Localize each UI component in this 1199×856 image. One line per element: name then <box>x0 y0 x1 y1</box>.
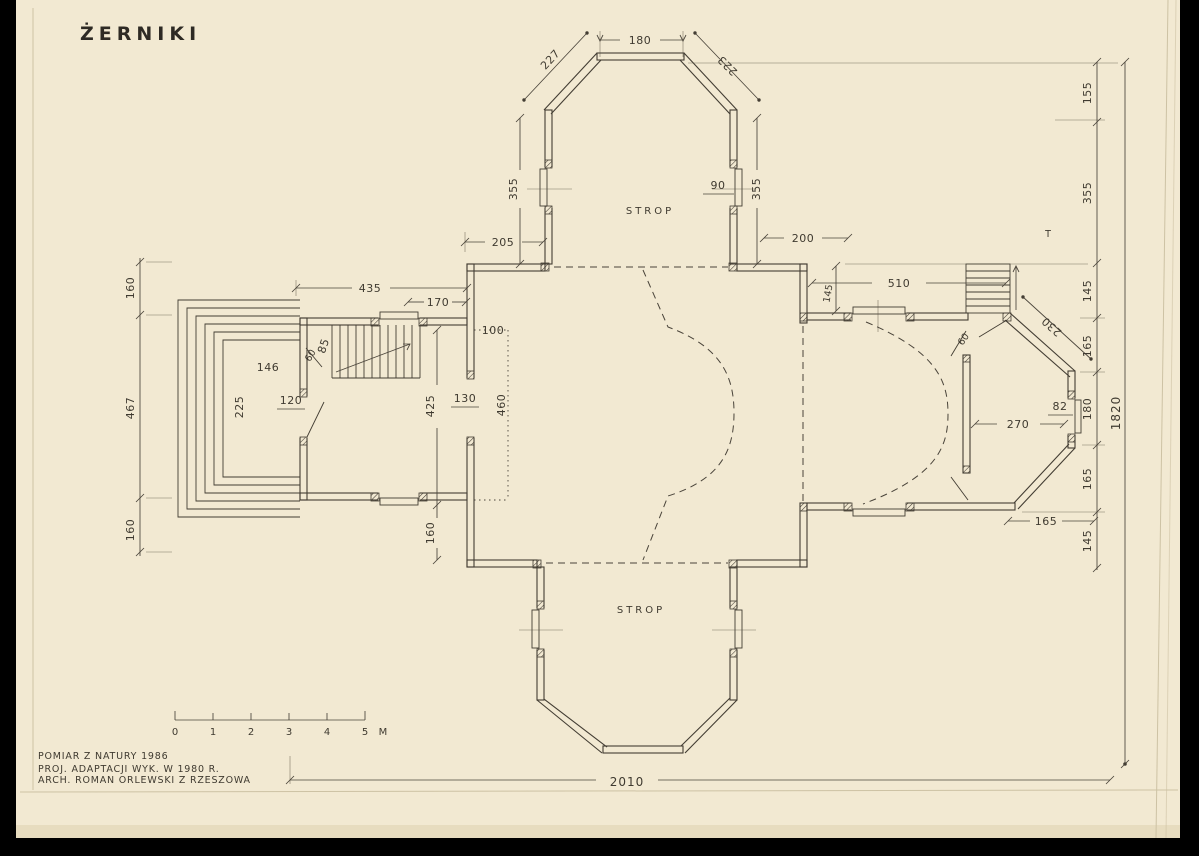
dim-north-off-left: 205 <box>461 232 547 252</box>
note-line-2: PROJ. ADAPTACJI WYK. W 1980 R. <box>38 764 220 775</box>
svg-text:230: 230 <box>1039 314 1064 339</box>
svg-text:180: 180 <box>629 34 652 47</box>
t-mark: T <box>1044 229 1051 240</box>
dim-west-stair-width: 85 <box>315 337 332 355</box>
scale-mark-1: 1 <box>210 727 216 738</box>
svg-text:160: 160 <box>124 277 137 300</box>
west-door-leaf <box>307 402 324 437</box>
dim-north-diag-left: 227 <box>522 31 588 101</box>
svg-text:223: 223 <box>715 53 740 78</box>
drawing-title: ŻERNIKI <box>80 21 201 45</box>
dim-nave-opening: 130 <box>451 392 479 407</box>
svg-text:170: 170 <box>427 296 450 309</box>
floor-plan-drawing: STROP <box>0 0 1199 856</box>
room-label-strop-north: STROP <box>626 206 674 217</box>
svg-text:435: 435 <box>359 282 382 295</box>
dim-west-room-height: 225 <box>233 396 246 419</box>
scale-bar: 0 1 2 3 4 5 M <box>172 711 388 738</box>
dim-chancel-top: 510 <box>808 277 1010 290</box>
dim-west-room-width: 146 <box>257 361 280 374</box>
svg-text:120: 120 <box>280 394 303 407</box>
svg-text:145: 145 <box>822 284 836 304</box>
svg-text:425: 425 <box>424 395 437 418</box>
svg-text:467: 467 <box>124 397 137 420</box>
svg-text:355: 355 <box>1081 182 1094 205</box>
dim-west-top-inner: 170 <box>404 296 470 309</box>
dim-north-wall-right: 355 <box>750 114 763 268</box>
dim-left-chain: 160 467 160 <box>124 258 172 556</box>
dim-north-off-right: 200 <box>760 232 852 245</box>
dim-nave-wall-upper: 425 <box>424 326 441 509</box>
svg-text:180: 180 <box>1081 398 1094 421</box>
dim-nave-gallery-width: 100 <box>482 324 505 337</box>
svg-text:165: 165 <box>1035 515 1058 528</box>
dim-chancel-width: 270 <box>971 418 1068 431</box>
note-line-3: ARCH. ROMAN ORLEWSKI Z RZESZOWA <box>38 775 251 786</box>
dim-west-top-total: 435 <box>292 280 471 296</box>
svg-text:145: 145 <box>1081 530 1094 553</box>
east-staircase <box>966 264 1019 313</box>
dim-west-door: 120 <box>277 394 305 409</box>
south-transept-walls: STROP <box>519 567 756 753</box>
room-label-strop-south: STROP <box>617 605 665 616</box>
svg-text:205: 205 <box>492 236 515 249</box>
dim-chancel-offset: 145 <box>822 262 840 315</box>
svg-text:165: 165 <box>1081 468 1094 491</box>
note-line-1: POMIAR Z NATURY 1986 <box>38 751 168 762</box>
west-staircase <box>332 325 420 378</box>
dim-total-width: 2010 <box>286 756 1114 789</box>
svg-text:510: 510 <box>888 277 911 290</box>
svg-text:130: 130 <box>454 392 477 405</box>
svg-text:155: 155 <box>1081 82 1094 105</box>
svg-text:160: 160 <box>124 519 137 542</box>
scanned-drawing: STROP <box>0 0 1199 856</box>
dim-nave-gallery-depth: 460 <box>495 394 508 417</box>
scale-mark-0: 0 <box>172 727 178 738</box>
svg-text:200: 200 <box>792 232 815 245</box>
scale-mark-3: 3 <box>286 727 292 738</box>
dimensions: 180 227 223 355 <box>124 31 1129 789</box>
svg-text:2010: 2010 <box>610 775 645 789</box>
scale-mark-4: 4 <box>324 727 330 738</box>
dim-total-height: 1820 <box>1109 58 1129 768</box>
svg-text:145: 145 <box>1081 280 1094 303</box>
svg-text:1820: 1820 <box>1109 396 1123 431</box>
title-block-notes: POMIAR Z NATURY 1986 PROJ. ADAPTACJI WYK… <box>38 751 251 786</box>
scale-mark-2: 2 <box>248 727 254 738</box>
dim-north-diag-right: 223 <box>693 31 760 101</box>
north-transept-walls: STROP <box>527 53 756 264</box>
paper-fold-lines <box>20 0 1178 838</box>
svg-text:227: 227 <box>538 47 563 72</box>
chancel-walls <box>800 264 1081 516</box>
svg-text:355: 355 <box>750 178 763 201</box>
svg-text:90: 90 <box>711 179 726 192</box>
svg-text:165: 165 <box>1081 335 1094 358</box>
nave-walls <box>465 263 807 568</box>
svg-text:270: 270 <box>1007 418 1030 431</box>
scale-unit: M <box>379 727 388 738</box>
svg-text:355: 355 <box>507 178 520 201</box>
dim-chancel-door: 60 <box>956 331 972 347</box>
dim-chancel-bottom-offset: 165 <box>1004 515 1098 528</box>
svg-text:160: 160 <box>424 522 437 545</box>
dim-nave-wall-lower: 160 <box>424 505 441 564</box>
scale-mark-5: 5 <box>362 727 368 738</box>
svg-text:82: 82 <box>1053 400 1068 413</box>
